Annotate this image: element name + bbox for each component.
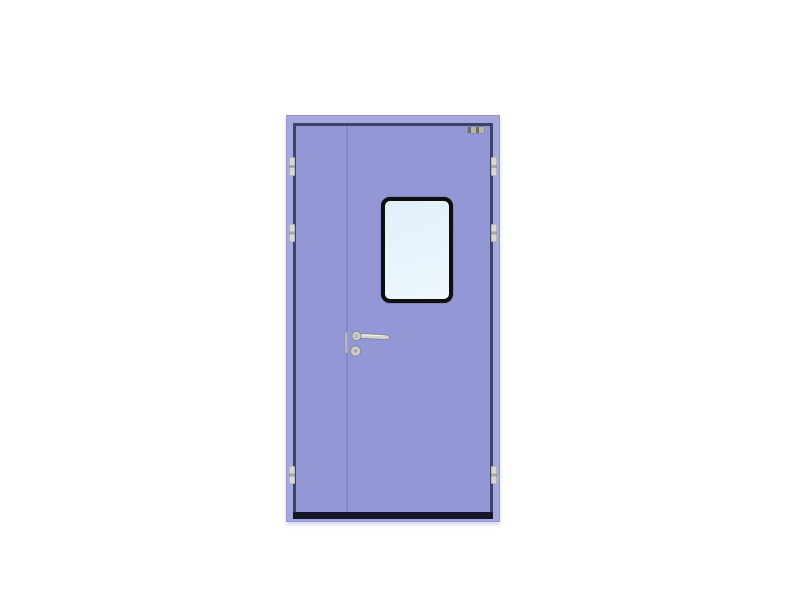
handle-rose-center [355, 334, 359, 338]
window-glass [385, 201, 449, 299]
product-photo-canvas [0, 0, 800, 600]
flush-bolt [345, 332, 348, 353]
door-edge-rebate [293, 123, 493, 519]
door-leaf-face [296, 126, 490, 512]
hinge-right-upper [491, 224, 497, 242]
threshold-bar [293, 512, 493, 519]
spec-label-plate [468, 127, 484, 133]
hinge-right-top [491, 157, 497, 176]
vision-window [381, 197, 453, 303]
lock-keyhole [354, 350, 357, 353]
door-hardware-group [344, 326, 394, 366]
meeting-stile [346, 126, 348, 512]
hinge-left-upper [289, 224, 295, 242]
door-frame [286, 115, 500, 522]
hinge-left-top [289, 157, 295, 176]
hinge-right-bottom [491, 466, 497, 484]
hinge-left-bottom [289, 466, 295, 484]
